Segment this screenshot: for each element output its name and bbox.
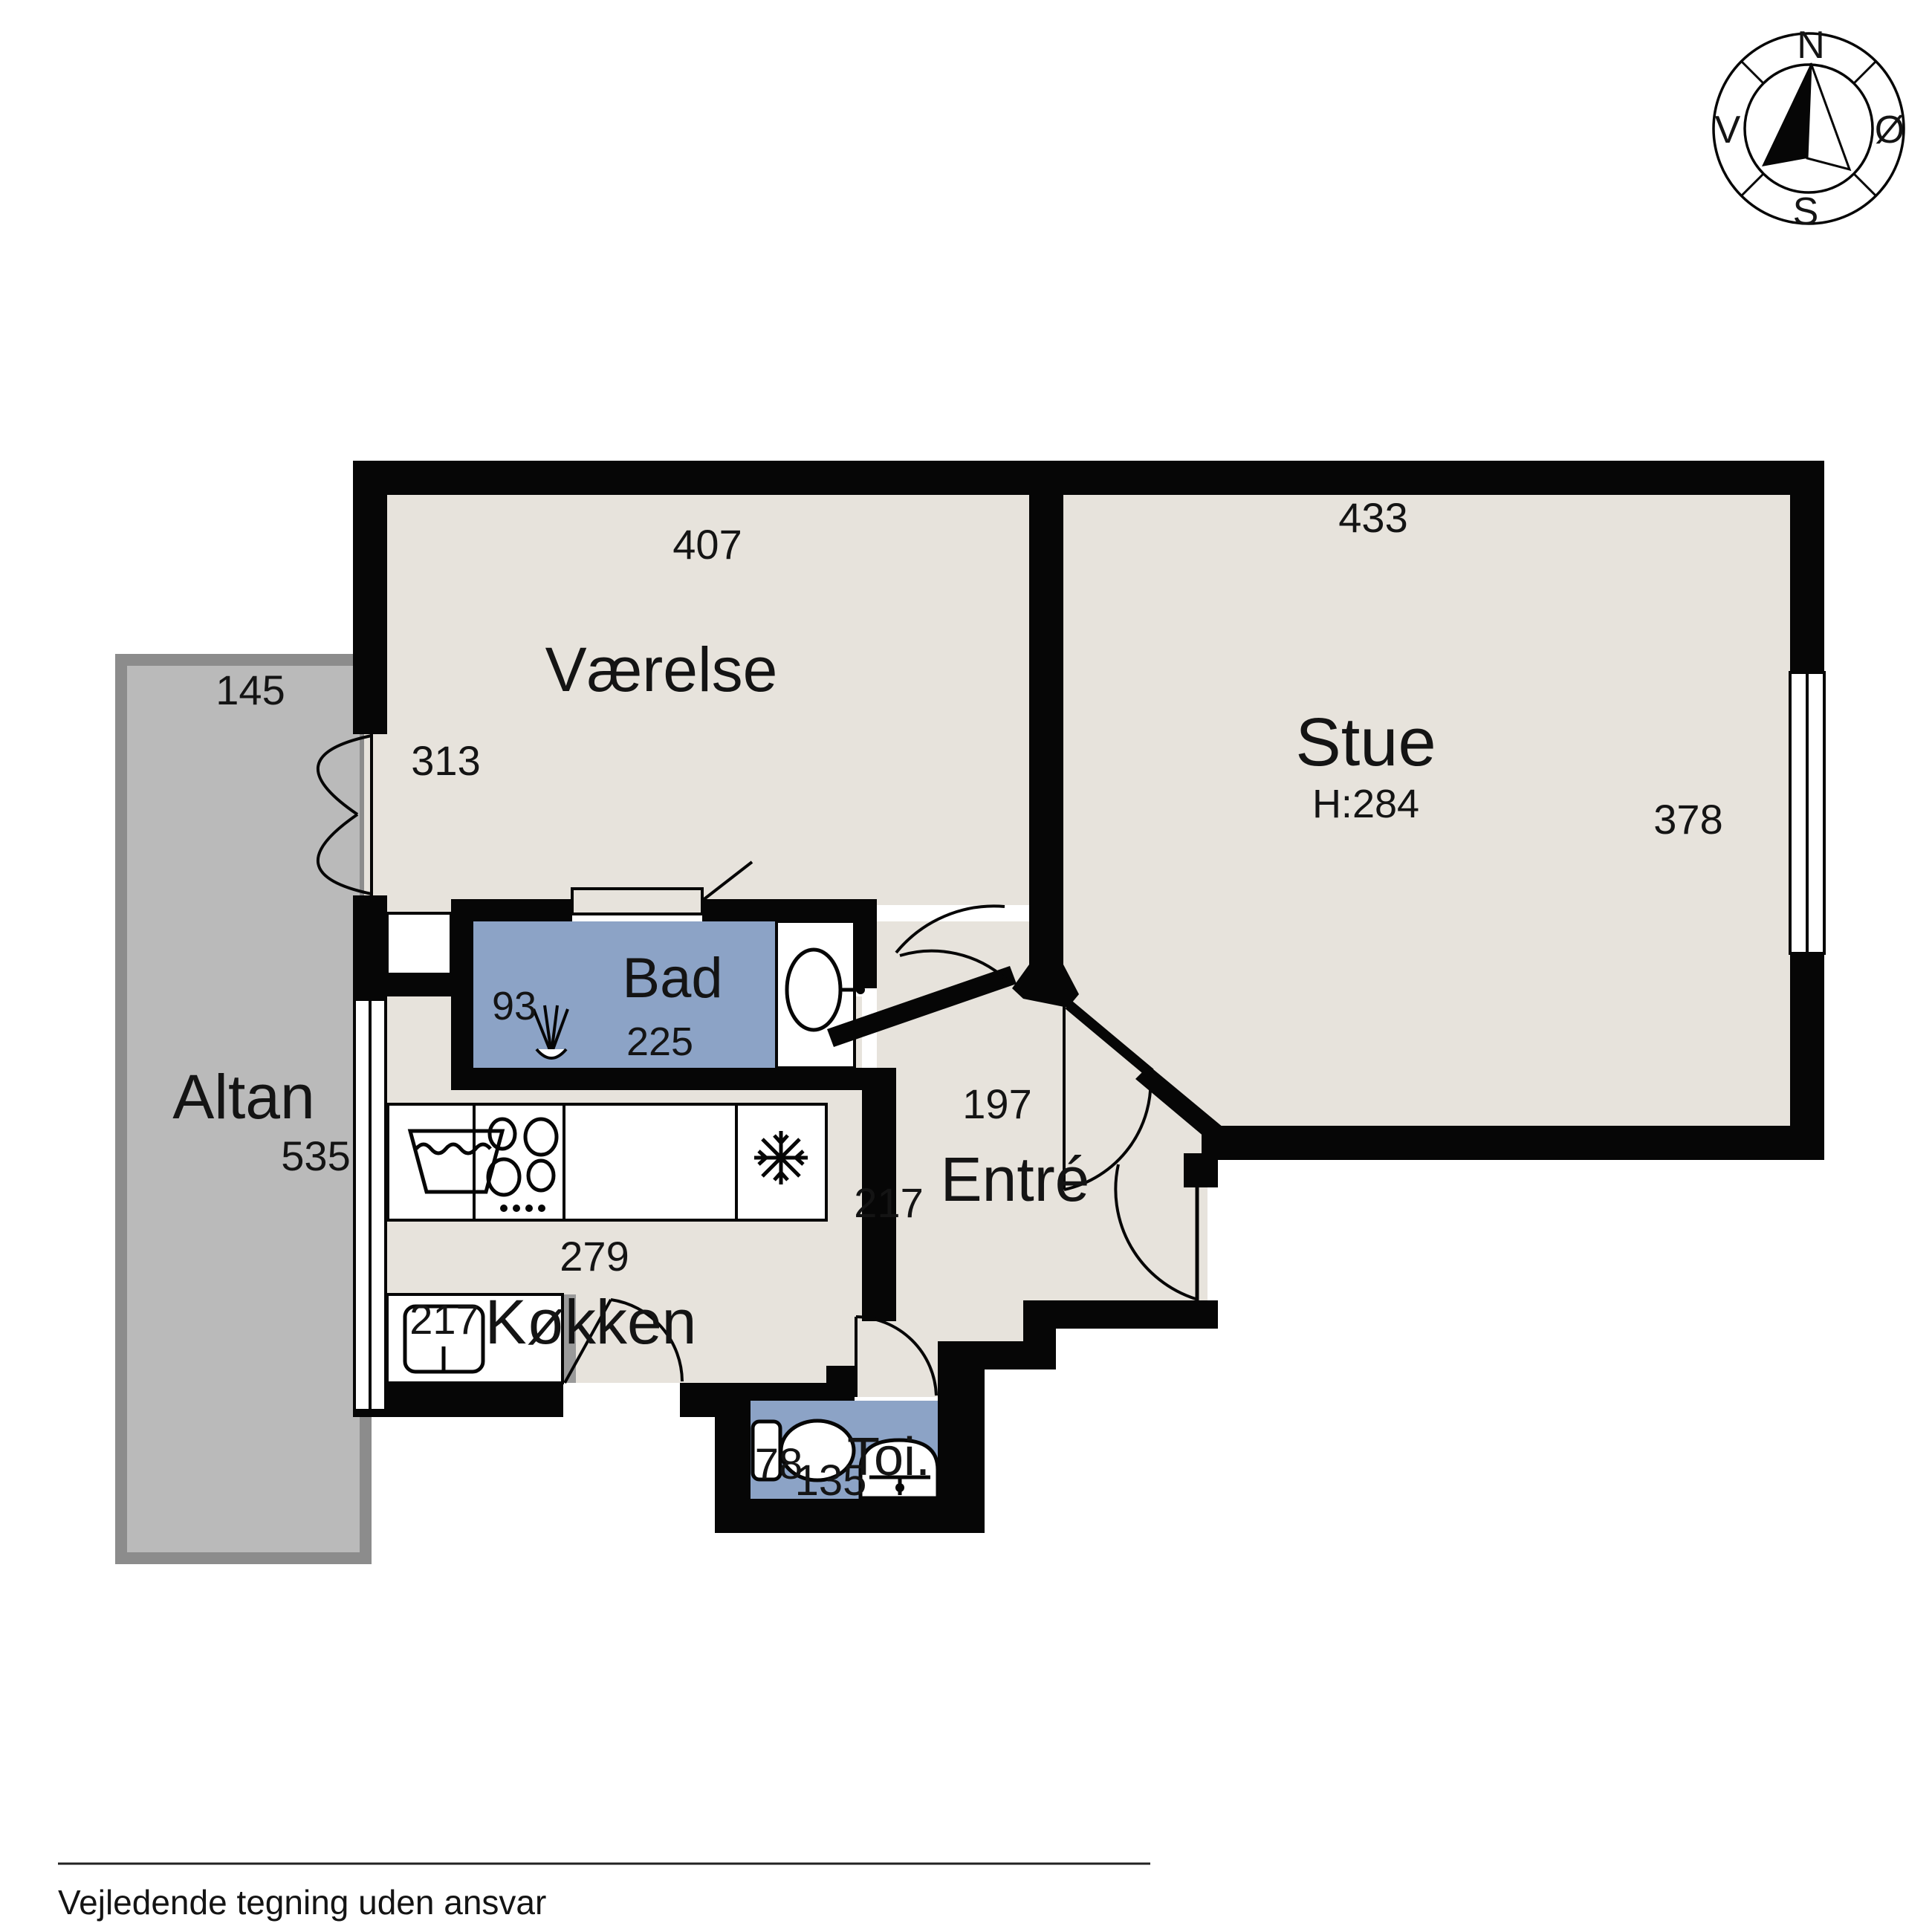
stue-label: Stue: [1295, 704, 1436, 780]
toi-dim-bottom: 135: [795, 1456, 867, 1505]
wall-stue-south: [1202, 1126, 1824, 1160]
balcony-door-threshold: [364, 734, 387, 895]
altan-dim-right: 535: [281, 1132, 350, 1179]
washing-machine: [388, 1104, 474, 1220]
kokken-label: Køkken: [485, 1287, 697, 1357]
entre-dim-top: 197: [962, 1080, 1031, 1127]
kokken-dim-left: 217: [409, 1296, 479, 1343]
altan-dim-top: 145: [215, 667, 285, 713]
wall-bad-top-right: [702, 899, 877, 921]
duct-niche: [387, 913, 451, 974]
wall-frontdoor-stub-top: [1184, 1153, 1218, 1187]
floorplan-canvas: Værelse 407 313 Stue H:284 433 378 Bad 9…: [0, 0, 1932, 1932]
footer-disclaimer: Vejledende tegning uden ansvar: [58, 1883, 546, 1922]
wall-west-upper: [353, 461, 387, 734]
wall-bad-east: [855, 899, 877, 988]
bad-label: Bad: [622, 947, 722, 1010]
entre-dim-left: 217: [854, 1179, 923, 1226]
wall-west-stub: [353, 895, 387, 979]
footer: Vejledende tegning uden ansvar: [58, 1864, 1150, 1922]
compass-s: S: [1793, 190, 1819, 233]
compass-o: Ø: [1875, 108, 1905, 152]
wall-bad-south: [451, 1068, 862, 1090]
window-stue-east: [1790, 672, 1824, 953]
vaerelse-dim-top: 407: [672, 521, 742, 568]
compass-n: N: [1797, 24, 1825, 67]
stue-dim-right: 378: [1653, 796, 1722, 843]
wall-toi-top-stub: [826, 1366, 855, 1401]
bad-dim-bottom: 225: [626, 1020, 693, 1064]
vaerelse-dim-left: 313: [411, 737, 480, 784]
stue-dim-top: 433: [1338, 494, 1407, 541]
wall-north: [353, 461, 1824, 495]
kokken-dim-top: 279: [560, 1233, 629, 1280]
wall-step-c: [953, 1341, 1056, 1369]
wall-bad-west: [451, 899, 473, 1090]
wall-toi-top: [751, 1383, 826, 1401]
compass-v: V: [1715, 108, 1741, 152]
wall-partition: [1029, 461, 1063, 966]
kitchen-counter: [564, 1104, 736, 1220]
stue-ceiling-height: H:284: [1312, 782, 1419, 826]
vaerelse-label: Værelse: [545, 635, 778, 704]
window-kokken-west: [354, 999, 386, 1410]
entre-label: Entré: [941, 1144, 1090, 1214]
altan-label: Altan: [172, 1062, 314, 1132]
bad-dim-left: 93: [492, 984, 537, 1028]
compass-rose-icon: N S V Ø: [1714, 24, 1905, 233]
